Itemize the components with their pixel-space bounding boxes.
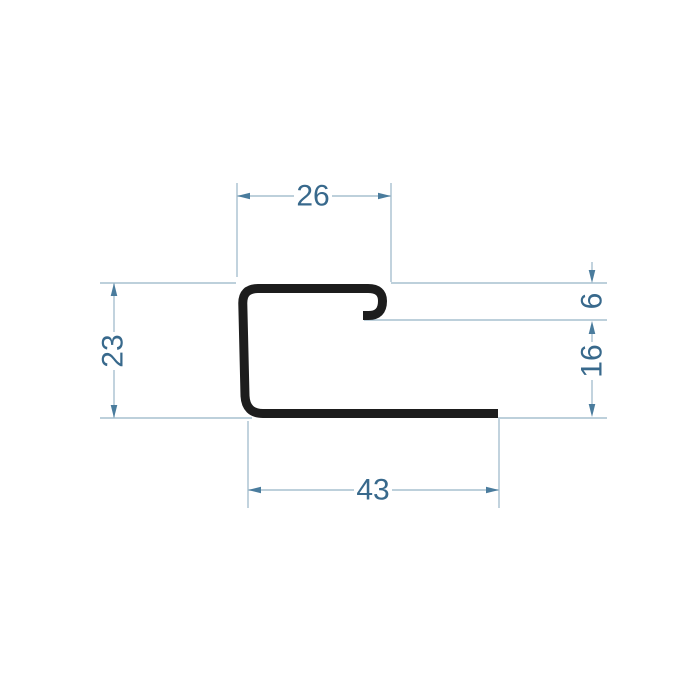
drawing-canvas: 26 23 6 16 43 — [0, 0, 700, 700]
profile-dimension-drawing: 26 23 6 16 43 — [0, 0, 700, 700]
arrowhead-top-right-icon — [378, 193, 391, 200]
dim-label-left-height: 23 — [97, 334, 130, 367]
dim-label-lip-height: 6 — [576, 293, 609, 310]
dimension-lines — [100, 183, 607, 508]
arrowhead-top-left-icon — [237, 193, 250, 200]
dim-label-top-width: 26 — [296, 180, 329, 213]
arrowhead-right-up-icon — [589, 321, 596, 334]
dim-label-right-height: 16 — [576, 344, 609, 377]
arrowhead-bottom-left-icon — [248, 487, 261, 494]
arrowhead-left-up-icon — [111, 283, 118, 296]
arrowhead-right-down-icon — [589, 404, 596, 417]
dim-label-bottom-width: 43 — [356, 474, 389, 507]
arrowhead-left-down-icon — [111, 405, 118, 418]
dimension-arrowheads — [111, 193, 596, 494]
arrowhead-lip-down-icon — [589, 270, 596, 283]
dimension-labels: 26 23 6 16 43 — [97, 180, 609, 507]
arrowhead-bottom-right-icon — [486, 487, 499, 494]
profile-outline — [243, 289, 498, 414]
